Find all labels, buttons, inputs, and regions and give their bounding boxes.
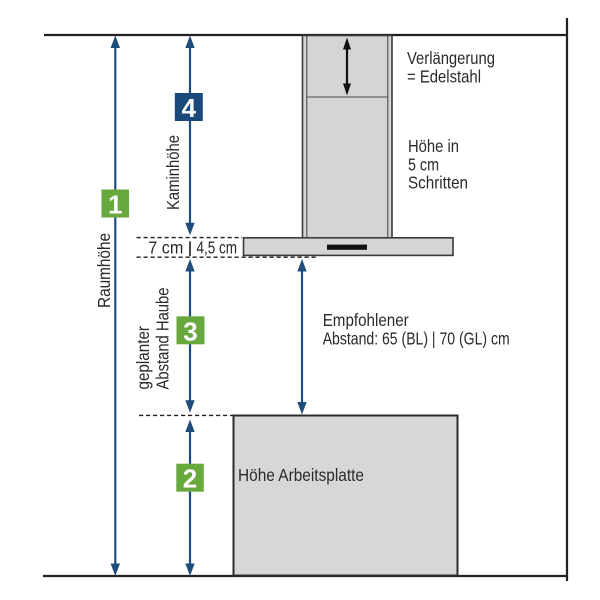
svg-text:Verlängerung: Verlängerung	[407, 48, 495, 68]
svg-text:4: 4	[182, 93, 197, 123]
svg-text:geplanter: geplanter	[133, 326, 153, 390]
svg-text:Raumhöhe: Raumhöhe	[94, 233, 114, 308]
svg-text:Höhe Arbeitsplatte: Höhe Arbeitsplatte	[238, 465, 364, 485]
svg-text:3: 3	[183, 316, 197, 346]
svg-text:4,5 cm: 4,5 cm	[197, 238, 238, 258]
svg-text:2: 2	[183, 464, 197, 494]
svg-text:5 cm: 5 cm	[408, 155, 439, 175]
svg-text:Kaminhöhe: Kaminhöhe	[163, 135, 183, 210]
svg-text:Schritten: Schritten	[408, 173, 468, 193]
svg-text:Abstand Haube: Abstand Haube	[153, 288, 173, 390]
svg-text:Abstand: 65 (BL) | 70 (GL) cm: Abstand: 65 (BL) | 70 (GL) cm	[323, 329, 510, 349]
svg-text:Höhe in: Höhe in	[408, 136, 459, 156]
svg-text:= Edelstahl: = Edelstahl	[407, 67, 481, 87]
svg-text:7 cm: 7 cm	[148, 238, 183, 258]
svg-text:1: 1	[108, 190, 122, 220]
svg-text:Empfohlener: Empfohlener	[323, 310, 409, 330]
